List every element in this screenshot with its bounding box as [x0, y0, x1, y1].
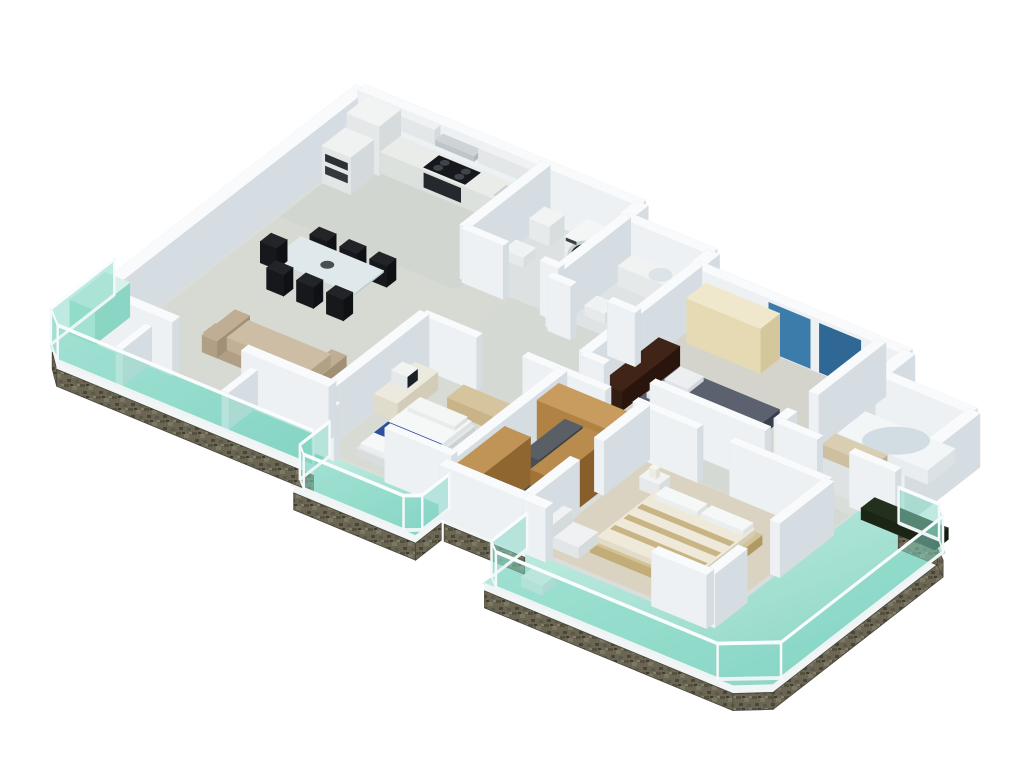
burner-3 — [440, 160, 450, 166]
wall-master-east-a — [770, 520, 779, 578]
wall-master-front-b — [707, 569, 714, 629]
glass-railing-bedroom2 — [404, 494, 423, 497]
slab-edge-master — [733, 692, 773, 710]
wall-bathroom-south-a — [571, 282, 576, 340]
wall-laundry-south-a — [503, 241, 508, 299]
wall-closet-master-a — [595, 437, 604, 495]
burner-4 — [461, 169, 471, 175]
laundry-toilet-lid — [510, 243, 530, 255]
wall-living-front-a — [173, 316, 180, 376]
wall-bathroom-south-b — [635, 308, 640, 366]
wall-hall-south-a — [477, 333, 482, 391]
wall-bathroom-south-a — [548, 277, 571, 341]
floorplan-canvas — [0, 0, 1024, 768]
wall-hall-south-c — [698, 424, 703, 482]
burner-1 — [433, 165, 443, 171]
burner-2 — [454, 174, 464, 180]
glass-railing-bedroom2 — [404, 497, 423, 529]
vanity-basin — [649, 268, 673, 282]
glass-railing-bedroom2 — [404, 528, 423, 531]
wall-master-front-a — [546, 503, 553, 563]
glass-railing-master — [718, 644, 781, 678]
floorplan-3d-render — [0, 0, 1024, 768]
table-centerpiece — [320, 261, 334, 269]
